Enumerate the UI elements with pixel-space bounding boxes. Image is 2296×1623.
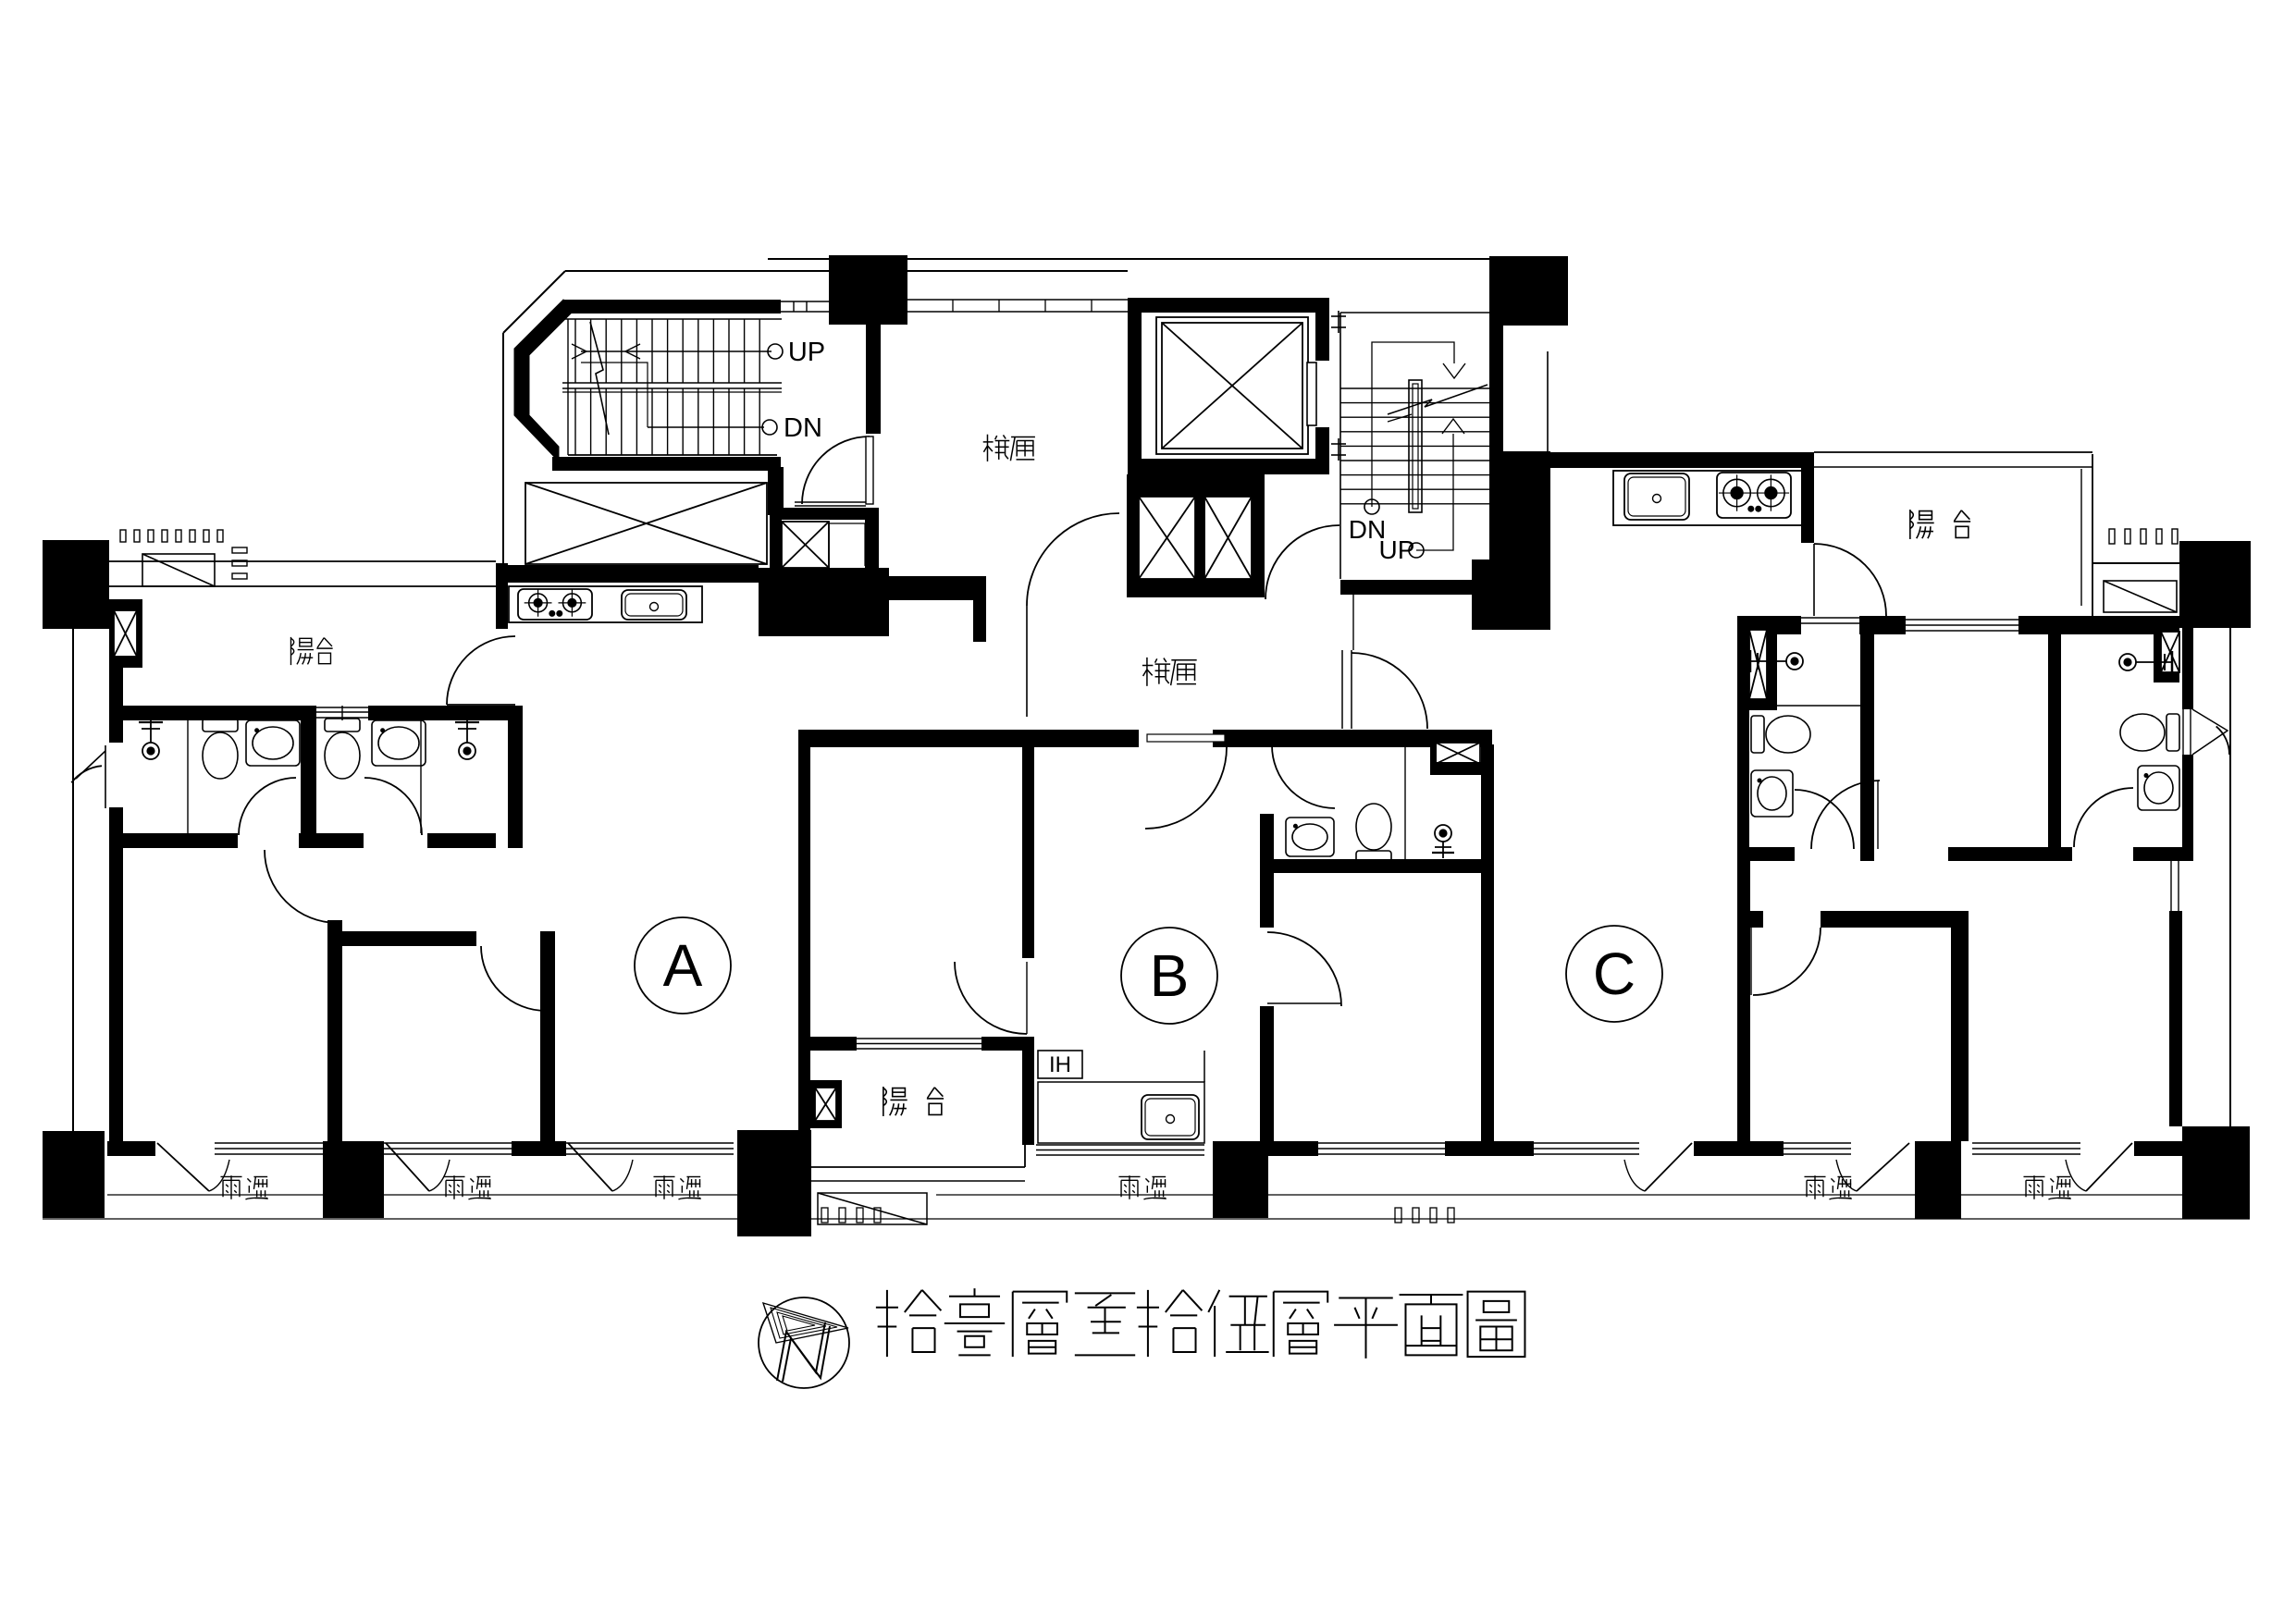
- svg-text:IH: IH: [1049, 1052, 1071, 1077]
- svg-text:DN: DN: [784, 413, 822, 443]
- svg-text:B: B: [1150, 942, 1190, 1009]
- svg-text:UP: UP: [1379, 535, 1415, 564]
- svg-text:UP: UP: [788, 338, 825, 367]
- svg-text:C: C: [1593, 941, 1636, 1007]
- svg-text:A: A: [663, 932, 703, 999]
